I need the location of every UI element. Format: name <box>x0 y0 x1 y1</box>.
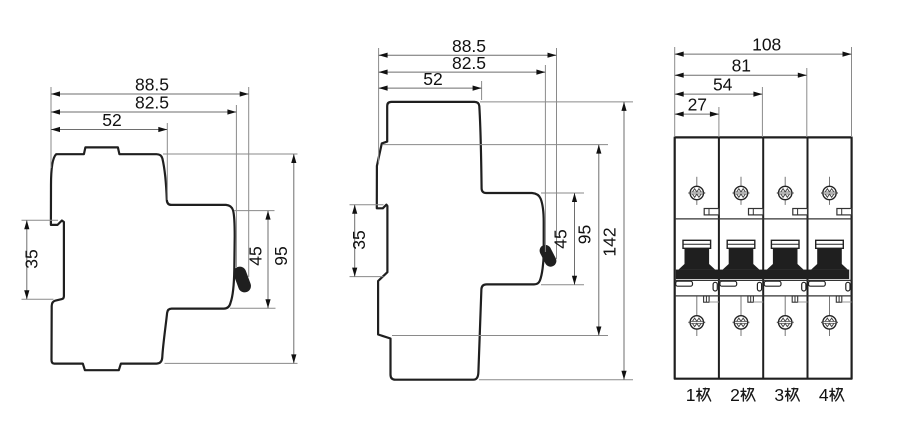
svg-text:95: 95 <box>575 225 595 244</box>
svg-text:82.5: 82.5 <box>135 93 169 113</box>
svg-text:1: 1 <box>686 385 696 405</box>
svg-text:4: 4 <box>819 385 829 405</box>
svg-text:81: 81 <box>732 56 751 76</box>
svg-text:45: 45 <box>246 246 266 265</box>
svg-text:35: 35 <box>349 230 369 249</box>
svg-text:52: 52 <box>423 69 442 89</box>
svg-text:2: 2 <box>730 385 740 405</box>
svg-text:82.5: 82.5 <box>452 53 486 73</box>
svg-text:54: 54 <box>713 74 733 94</box>
svg-text:45: 45 <box>551 229 571 248</box>
svg-text:142: 142 <box>600 227 620 256</box>
svg-text:3: 3 <box>774 385 784 405</box>
svg-text:35: 35 <box>22 249 42 268</box>
svg-text:95: 95 <box>271 246 291 265</box>
svg-text:108: 108 <box>752 34 781 54</box>
svg-text:52: 52 <box>102 110 121 130</box>
svg-text:27: 27 <box>688 94 707 114</box>
